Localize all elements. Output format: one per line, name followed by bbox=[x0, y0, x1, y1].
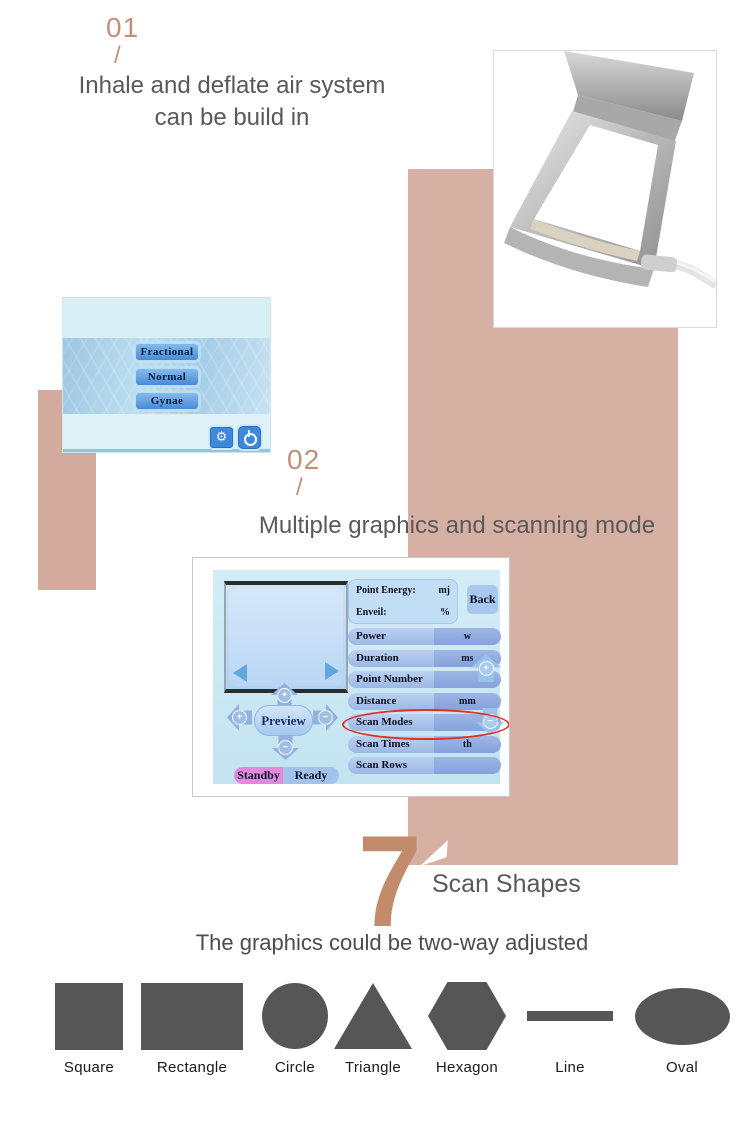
param-row-scan-rows[interactable]: Scan Rows bbox=[348, 757, 501, 774]
shape-item-square: Square bbox=[39, 981, 139, 1076]
power-icon[interactable] bbox=[238, 426, 261, 449]
normal-button[interactable]: Normal bbox=[135, 368, 199, 386]
triangle-label: Triangle bbox=[345, 1059, 401, 1076]
scan-display bbox=[224, 581, 348, 693]
display-right-arrow-icon[interactable] bbox=[325, 662, 339, 680]
gear-icon[interactable]: ⚙ bbox=[210, 427, 233, 448]
energy-info-box: Point Energy: mj Enveil: % bbox=[348, 579, 458, 624]
circle-label: Circle bbox=[275, 1059, 315, 1076]
shape-item-triangle: Triangle bbox=[323, 981, 423, 1076]
standby-button[interactable]: Standby bbox=[234, 767, 283, 784]
hexagon-shape bbox=[428, 982, 506, 1050]
line-shape bbox=[527, 1011, 613, 1021]
handpiece-photo-frame bbox=[493, 50, 717, 328]
scan-shapes-heading: Scan Shapes bbox=[432, 870, 581, 899]
point-energy-unit: mj bbox=[438, 585, 450, 596]
gynae-button[interactable]: Gynae bbox=[135, 392, 199, 410]
minus-icon: − bbox=[278, 740, 293, 755]
square-shape bbox=[55, 983, 123, 1050]
back-button[interactable]: Back bbox=[467, 585, 498, 614]
left-arrow-plus-button[interactable]: + bbox=[227, 704, 252, 731]
shape-item-rectangle: Rectangle bbox=[141, 981, 243, 1076]
plus-icon: + bbox=[479, 661, 494, 676]
shape-item-hexagon: Hexagon bbox=[417, 981, 517, 1076]
scan-modes-highlight-ring bbox=[342, 709, 510, 740]
device-screen-edge bbox=[63, 449, 270, 452]
shape-item-line: Line bbox=[520, 981, 620, 1076]
section-07-number: 7 bbox=[358, 816, 422, 946]
param-row-power[interactable]: Power w bbox=[348, 628, 501, 645]
preview-button[interactable]: Preview bbox=[254, 705, 313, 736]
control-panel: + + Preview − − Standby Ready Point Ener… bbox=[213, 570, 500, 784]
ready-button[interactable]: Ready bbox=[283, 767, 339, 784]
enveil-label: Enveil: bbox=[356, 607, 387, 618]
square-label: Square bbox=[64, 1059, 114, 1076]
section-02-heading: Multiple graphics and scanning mode bbox=[237, 510, 677, 542]
triangle-shape bbox=[334, 983, 412, 1049]
shape-item-oval: Oval bbox=[632, 981, 732, 1076]
enveil-unit: % bbox=[440, 607, 450, 618]
section-01-heading-line1: Inhale and deflate air system bbox=[56, 70, 408, 102]
power-icon-ring bbox=[244, 433, 257, 446]
section-01-number: 01 bbox=[106, 12, 139, 44]
section-02-slash: / bbox=[296, 474, 303, 502]
control-screen: + + Preview − − Standby Ready Point Ener… bbox=[192, 557, 510, 797]
rectangle-label: Rectangle bbox=[157, 1059, 227, 1076]
power-icon-bar bbox=[248, 430, 250, 437]
fractional-button[interactable]: Fractional bbox=[135, 343, 199, 361]
display-left-arrow-icon[interactable] bbox=[233, 664, 247, 682]
plus-icon: + bbox=[277, 688, 292, 703]
circle-shape bbox=[262, 983, 328, 1049]
oval-shape bbox=[635, 988, 730, 1045]
product-infographic: { "colors": { "accent_tan": "#d6b1a3", "… bbox=[0, 0, 750, 1142]
right-arrow-minus-button[interactable]: − bbox=[313, 704, 338, 731]
point-energy-label: Point Energy: bbox=[356, 585, 416, 596]
handpiece-photo bbox=[494, 51, 716, 327]
hexagon-label: Hexagon bbox=[436, 1059, 498, 1076]
param-row-distance[interactable]: Distance mm bbox=[348, 693, 501, 710]
line-label: Line bbox=[555, 1059, 585, 1076]
down-arrow-minus-button[interactable]: − bbox=[272, 735, 299, 760]
section-01-heading: Inhale and deflate air system can be bui… bbox=[56, 70, 408, 134]
rectangle-shape bbox=[141, 983, 243, 1050]
plus-icon: + bbox=[232, 710, 247, 725]
section-02-number: 02 bbox=[287, 444, 320, 476]
device-mode-screen: Fractional Normal Gynae ⚙ bbox=[63, 298, 270, 452]
section-01-heading-line2: can be build in bbox=[56, 102, 408, 134]
oval-label: Oval bbox=[666, 1059, 698, 1076]
minus-icon: − bbox=[318, 710, 333, 725]
section-01-slash: / bbox=[114, 42, 121, 70]
param-row-point-number[interactable]: Point Number bbox=[348, 671, 501, 688]
